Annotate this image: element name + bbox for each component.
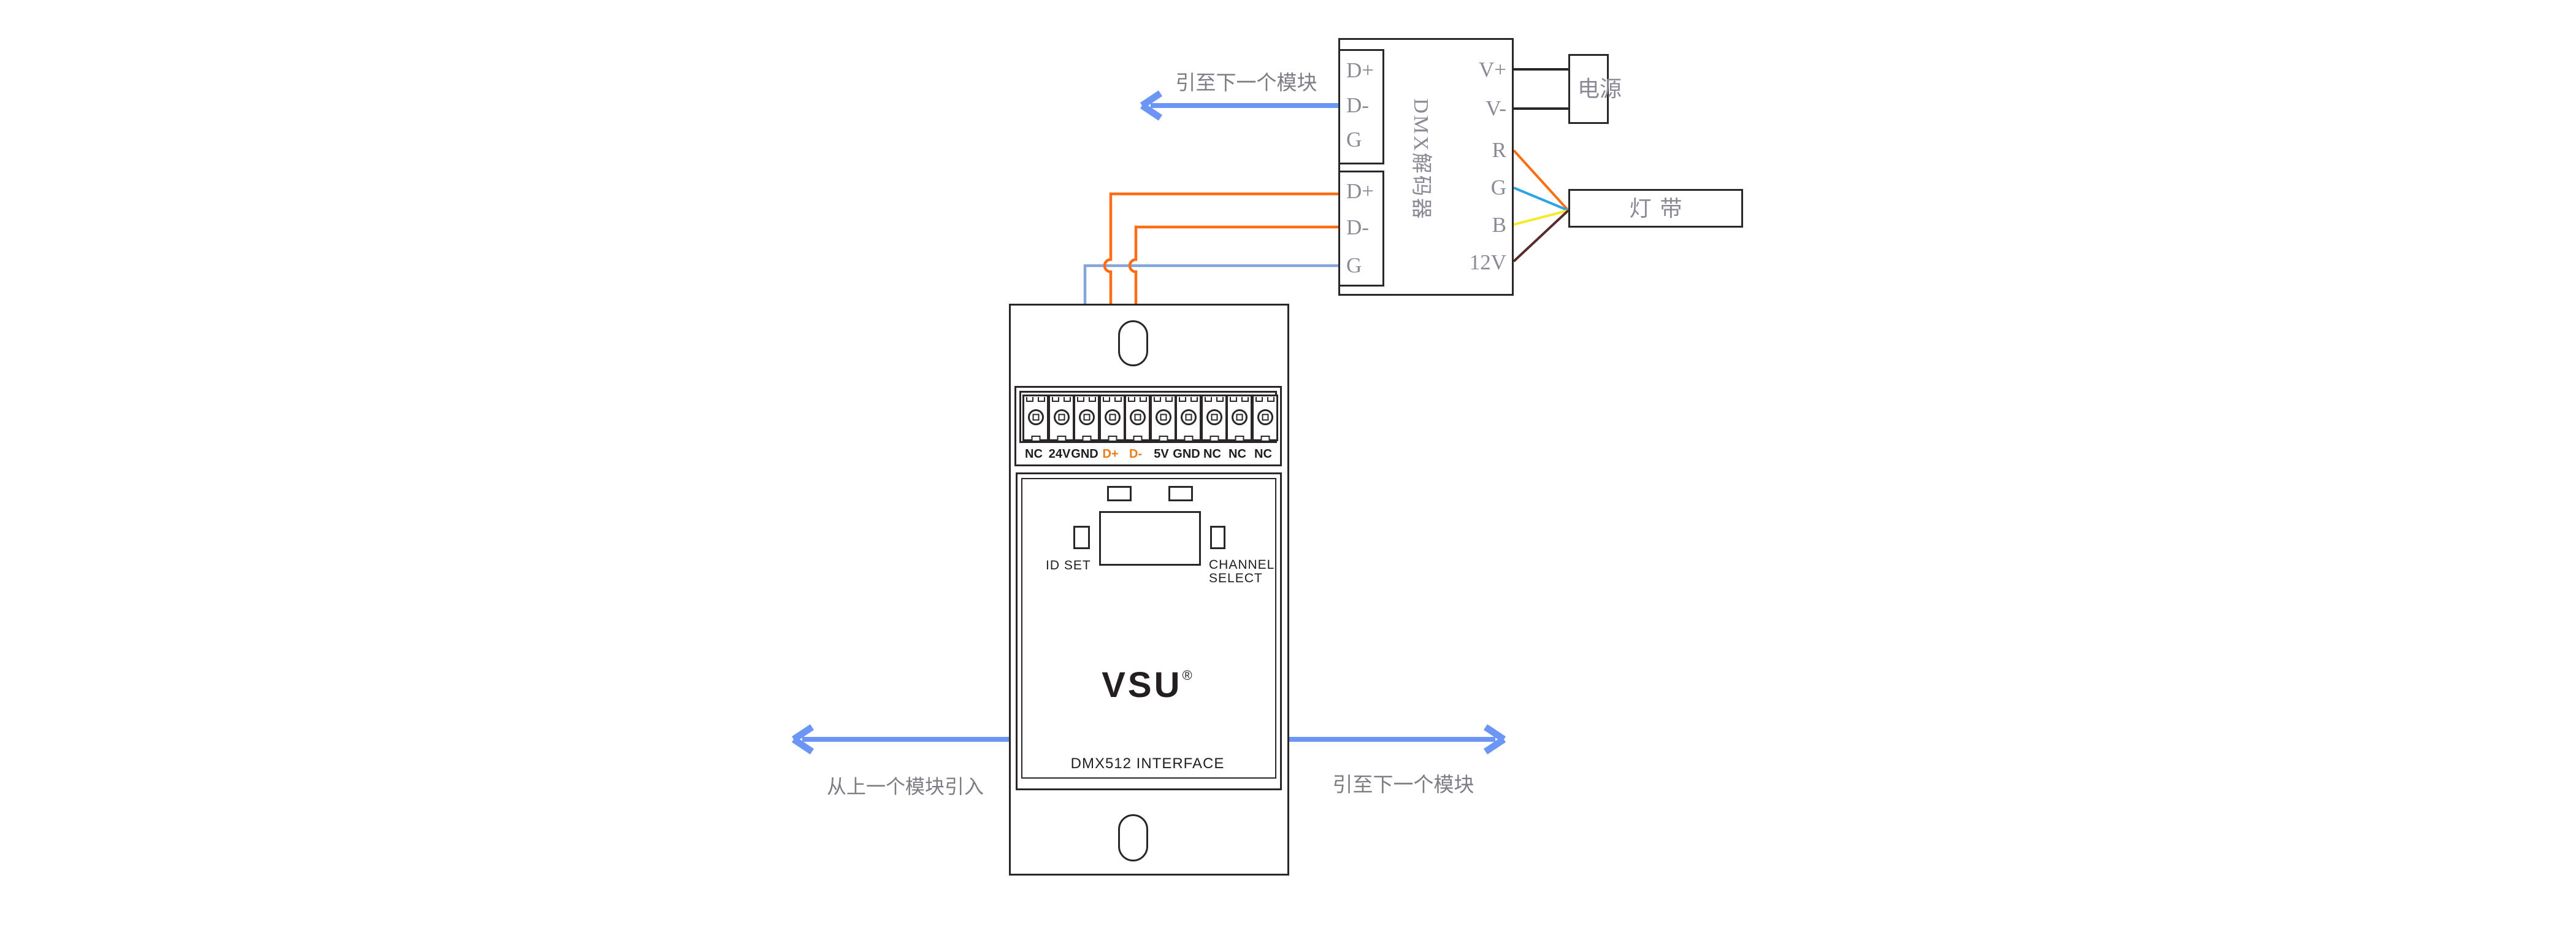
terminal-cell [1022,395,1049,441]
decoder-g-label: G [1460,176,1506,199]
led-strip-box: 灯带 [1568,189,1743,228]
power-supply-box: 电源 [1568,54,1609,124]
terminal-cell [1124,395,1151,441]
bottom-left-arrow-icon [794,727,1009,752]
decoder-name-vertical: DMX解码器 [1416,92,1438,227]
brand-logo: VSU® [1086,658,1208,703]
annotation-to-next-module-bottom: 引至下一个模块 [1330,774,1477,796]
wire-r-channel [1514,150,1568,210]
decoder-12v-label: 12V [1460,251,1506,274]
terminal-cell [1048,395,1075,441]
decoder-v-plus-label: V+ [1460,58,1506,82]
screw-terminal-icon [1054,409,1070,425]
terminal-cell [1073,395,1100,441]
terminal-cell [1175,395,1202,441]
screw-terminal-icon [1181,409,1197,425]
power-supply-label: 电源 [1577,77,1600,101]
wiring-diagram: NC 24V GND D+ D- 5V GND NC NC NC ID SET … [0,0,2576,932]
top-left-arrow-icon [1142,93,1338,118]
decoder-b-label: B [1460,214,1506,237]
terminal-cell [1099,395,1125,441]
led-strip-label: 灯带 [1620,197,1690,220]
panel-button-left [1107,486,1132,501]
registered-mark-icon: ® [1183,668,1192,683]
id-set-button [1073,526,1090,549]
mounting-hole-top [1118,320,1148,366]
screw-terminal-icon [1206,409,1222,425]
product-label: DMX512 INTERFACE [1056,755,1240,772]
decoder-r-label: R [1460,139,1506,162]
decoder-top-d-minus-label: D- [1346,94,1369,117]
channel-select-button [1210,526,1225,549]
decoder-bottom-g-label: G [1346,254,1362,277]
screw-terminal-icon [1156,409,1171,425]
decoder-top-g-label: G [1346,128,1362,152]
screw-terminal-icon [1232,409,1248,425]
decoder-bottom-d-plus-label: D+ [1346,180,1374,203]
display-screen [1099,511,1201,566]
terminal-label: NC [1244,447,1282,461]
screw-terminal-icon [1028,409,1044,425]
mounting-hole-bottom [1118,814,1148,861]
annotation-to-next-module-top: 引至下一个模块 [1173,72,1320,94]
bottom-right-arrow-icon [1289,727,1504,752]
channel-select-label-line1: CHANNEL [1209,558,1275,572]
decoder-top-d-plus-label: D+ [1346,59,1374,82]
screw-terminal-icon [1130,409,1146,425]
terminal-cell [1150,395,1176,441]
screw-terminal-icon [1079,409,1095,425]
screw-terminal-icon [1257,409,1273,425]
terminal-cell [1201,395,1227,441]
annotation-from-previous-module: 从上一个模块引入 [825,776,986,798]
decoder-bottom-d-minus-label: D- [1346,216,1369,239]
decoder-v-minus-label: V- [1460,97,1506,120]
id-set-label: ID SET [1046,558,1091,573]
panel-button-right [1168,486,1193,501]
wire-g-channel [1514,188,1568,210]
terminal-cell [1252,395,1278,441]
screw-terminal-icon [1105,409,1121,425]
terminal-cell [1226,395,1252,441]
channel-select-label-line2: SELECT [1209,571,1263,586]
